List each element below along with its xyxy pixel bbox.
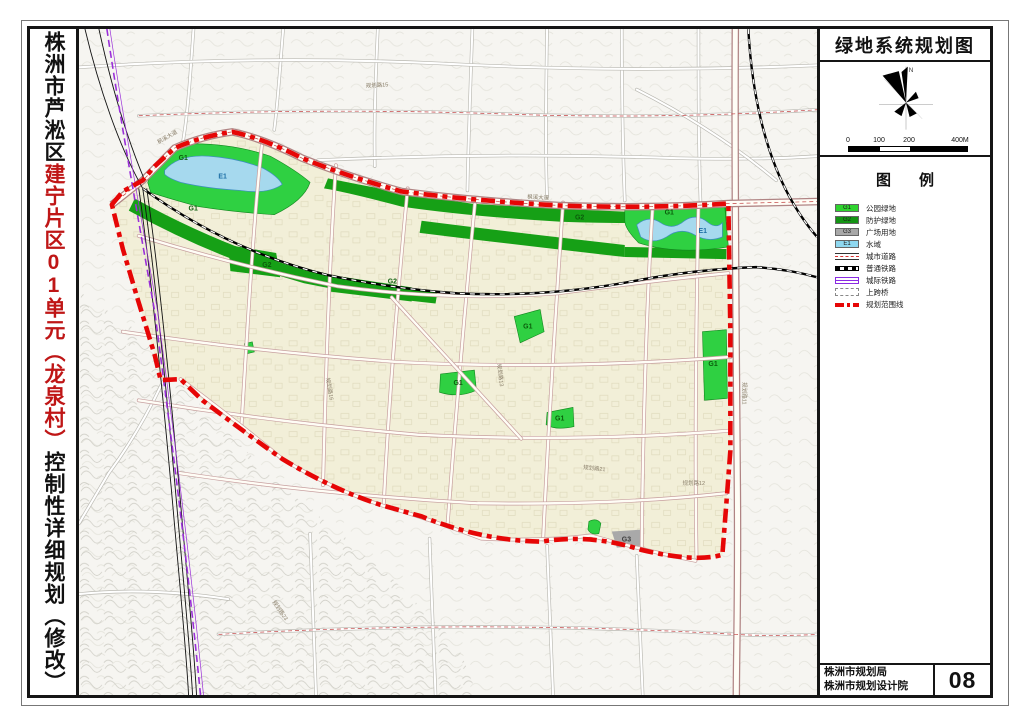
svg-text:G3: G3 — [622, 537, 631, 544]
square-swatch: G3 — [835, 228, 859, 236]
plan-sheet: 株洲市芦淞区建宁片区01单元（龙泉村）控制性详细规划（修改） — [0, 0, 1024, 723]
agency-line1: 株洲市规划局 — [824, 666, 933, 680]
scale-bar: 0 100 200 400M — [842, 137, 974, 153]
legend-row-park-green: G1 公园绿地 — [835, 202, 990, 214]
svg-text:G1: G1 — [665, 210, 674, 217]
legend-label: 上跨桥 — [866, 287, 889, 298]
legend-row-city-road: 城市道路 — [835, 250, 990, 262]
page-title: 株洲市芦淞区建宁片区01单元（龙泉村）控制性详细规划（修改） — [30, 29, 76, 695]
agency-names: 株洲市规划局 株洲市规划设计院 — [820, 665, 933, 695]
sheet-number: 08 — [933, 665, 990, 695]
planning-map: G1 E1 G1 G2 G2 G2 G1 E1 G1 G1 G1 G1 G3 枫… — [79, 29, 817, 695]
legend-label: 普通铁路 — [866, 263, 896, 274]
scale-tick: 200 — [903, 137, 915, 144]
svg-text:G2: G2 — [262, 262, 271, 269]
title-block: 株洲市规划局 株洲市规划设计院 08 — [820, 663, 990, 695]
svg-text:G1: G1 — [555, 415, 564, 422]
svg-text:G1: G1 — [523, 324, 532, 331]
title-red-part2: 单元（龙泉村） — [42, 297, 65, 451]
scale-tick: 400M — [951, 137, 969, 144]
legend-row-square: G3 广场用地 — [835, 226, 990, 238]
svg-text:E1: E1 — [218, 173, 227, 180]
legend-row-railway: 普通铁路 — [835, 262, 990, 274]
svg-text:规划路11: 规划路11 — [740, 382, 748, 404]
legend-row-protective-green: G2 防护绿地 — [835, 214, 990, 226]
legend-label: 城际铁路 — [866, 275, 896, 286]
legend-label: 水域 — [866, 239, 881, 250]
svg-text:G1: G1 — [179, 155, 188, 162]
protective-green-swatch: G2 — [835, 216, 859, 224]
drawing-frame: 株洲市芦淞区建宁片区01单元（龙泉村）控制性详细规划（修改） — [27, 26, 993, 698]
legend-row-water: E1 水域 — [835, 238, 990, 250]
park-green-swatch: G1 — [835, 204, 859, 212]
title-suffix: 控制性详细规划（修改） — [42, 451, 65, 693]
svg-text:规划路12: 规划路12 — [683, 479, 705, 487]
title-red-part1: 建宁片区 — [42, 163, 65, 251]
north-scale-box: N 0 100 200 400M — [820, 62, 990, 157]
info-panel: 绿地系统规划图 N 0 100 200 400M — [817, 29, 990, 695]
legend-header: 图例 — [820, 169, 990, 190]
railway-symbol — [835, 266, 859, 271]
legend-row-intercity-rail: 城际铁路 — [835, 274, 990, 286]
title-strip: 株洲市芦淞区建宁片区01单元（龙泉村）控制性详细规划（修改） — [30, 29, 79, 695]
svg-text:G2: G2 — [575, 215, 584, 222]
title-prefix: 株洲市芦淞区 — [42, 31, 65, 163]
title-red-number: 01 — [42, 251, 65, 297]
compass-rose-icon: N — [866, 63, 946, 135]
legend-label: 广场用地 — [866, 227, 896, 238]
svg-text:G1: G1 — [453, 380, 462, 387]
legend-label: 公园绿地 — [866, 203, 896, 214]
scale-tick: 0 — [846, 137, 850, 144]
svg-text:N: N — [909, 67, 914, 74]
boundary-symbol — [835, 303, 859, 307]
city-road-symbol — [835, 253, 859, 260]
scale-bar-graphic — [848, 146, 968, 152]
agency-line2: 株洲市规划设计院 — [824, 680, 933, 694]
legend-row-boundary: 规划范围线 — [835, 298, 990, 310]
legend-box: 图例 G1 公园绿地 G2 防护绿地 G3 广场用地 E1 — [820, 157, 990, 663]
legend-label: 规划范围线 — [866, 299, 904, 310]
svg-text:E1: E1 — [698, 228, 707, 235]
legend-items: G1 公园绿地 G2 防护绿地 G3 广场用地 E1 水域 — [820, 202, 990, 310]
svg-text:G1: G1 — [708, 361, 717, 368]
water-swatch: E1 — [835, 240, 859, 248]
scale-tick: 100 — [873, 137, 885, 144]
map-canvas: G1 E1 G1 G2 G2 G2 G1 E1 G1 G1 G1 G1 G3 枫… — [79, 29, 817, 695]
overpass-symbol — [835, 288, 859, 296]
svg-text:G1: G1 — [189, 206, 198, 213]
legend-label: 防护绿地 — [866, 215, 896, 226]
intercity-rail-symbol — [835, 277, 859, 284]
svg-text:G2: G2 — [388, 278, 397, 285]
legend-label: 城市道路 — [866, 251, 896, 262]
map-title: 绿地系统规划图 — [820, 29, 990, 62]
legend-row-overpass: 上跨桥 — [835, 286, 990, 298]
